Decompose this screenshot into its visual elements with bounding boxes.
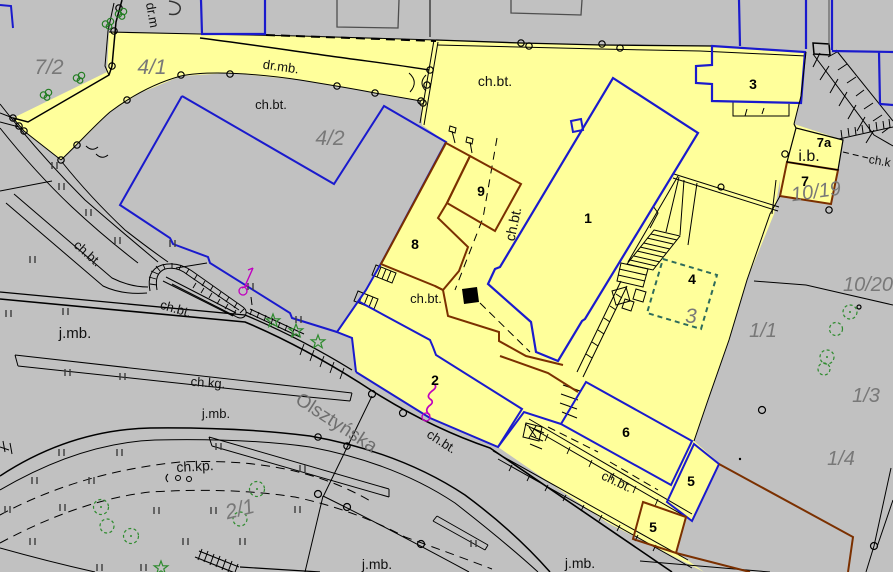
svg-text:1/1: 1/1 xyxy=(749,320,777,342)
svg-text:4: 4 xyxy=(688,271,696,287)
svg-text:2: 2 xyxy=(431,372,439,388)
svg-text:1/3: 1/3 xyxy=(852,385,880,407)
svg-text:7/2: 7/2 xyxy=(34,56,64,79)
svg-text:j.mb.: j.mb. xyxy=(58,325,92,342)
svg-text:ch.kp.: ch.kp. xyxy=(176,457,214,475)
svg-text:9: 9 xyxy=(477,183,485,199)
svg-text:1: 1 xyxy=(584,210,592,226)
svg-text:8: 8 xyxy=(411,236,419,252)
svg-text:7: 7 xyxy=(801,173,809,189)
svg-text:ch.bt.: ch.bt. xyxy=(410,291,442,306)
svg-text:j.mb.: j.mb. xyxy=(564,555,595,571)
svg-text:6: 6 xyxy=(622,424,630,440)
svg-text:3: 3 xyxy=(685,305,697,328)
svg-text:ch.bt.: ch.bt. xyxy=(255,97,287,112)
svg-text:1/4: 1/4 xyxy=(827,448,855,470)
svg-text:ch.bt.: ch.bt. xyxy=(478,73,512,89)
svg-text:7a: 7a xyxy=(817,135,832,150)
svg-text:5: 5 xyxy=(649,519,657,535)
svg-text:j.mb.: j.mb. xyxy=(361,556,392,572)
svg-text:10/20: 10/20 xyxy=(843,274,893,296)
svg-text:4/1: 4/1 xyxy=(137,56,166,79)
svg-text:i.b.: i.b. xyxy=(798,148,819,165)
svg-text:3: 3 xyxy=(749,76,757,92)
svg-text:j.mb.: j.mb. xyxy=(201,406,230,421)
svg-text:4/2: 4/2 xyxy=(315,127,345,150)
svg-text:ch.kg.: ch.kg. xyxy=(190,374,226,391)
svg-text:5: 5 xyxy=(687,473,695,489)
